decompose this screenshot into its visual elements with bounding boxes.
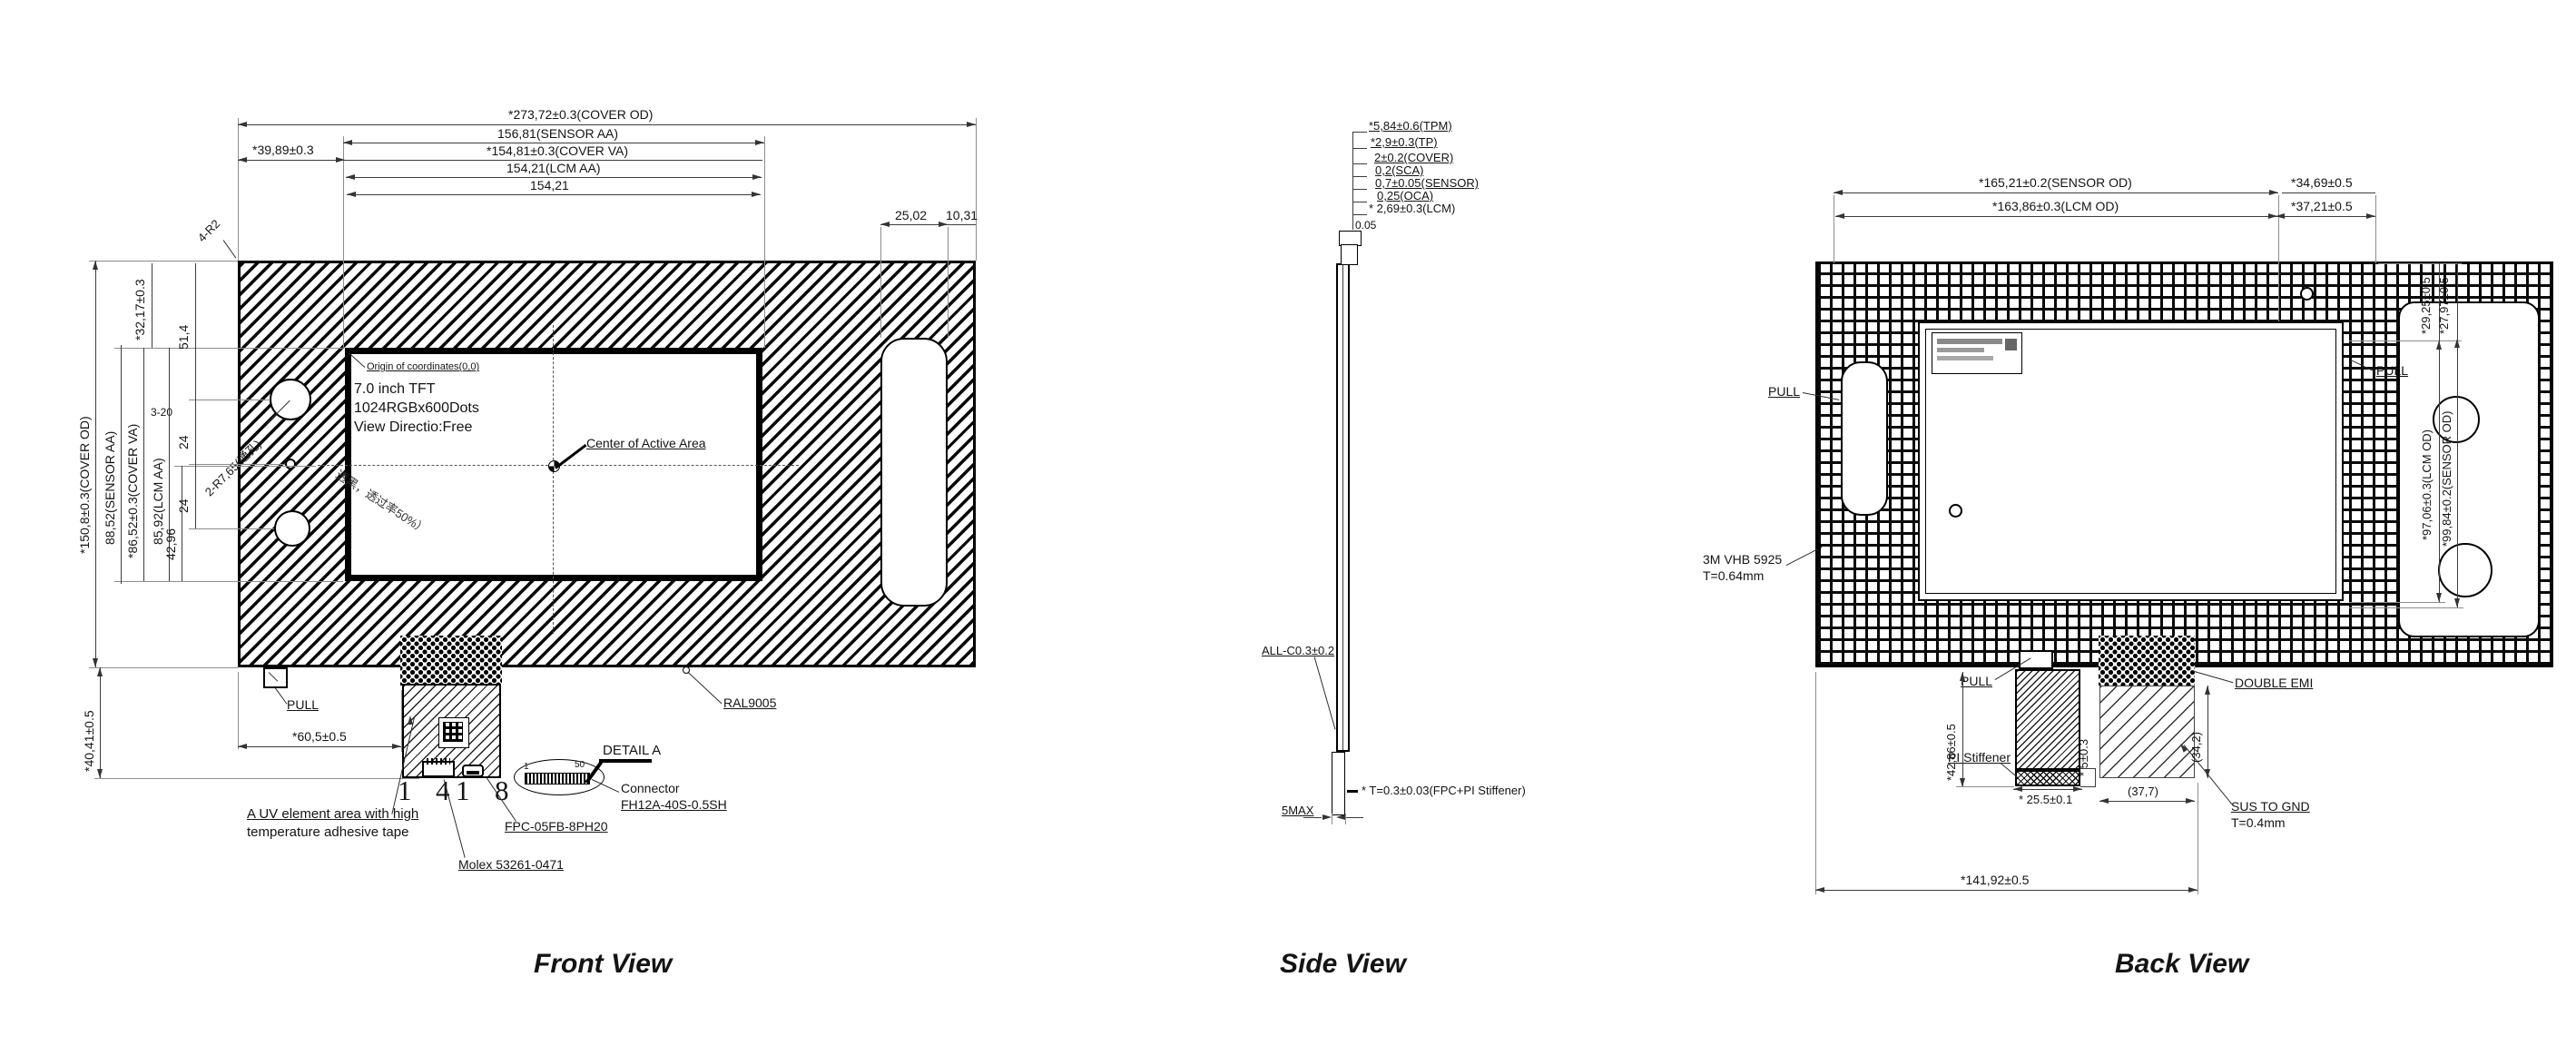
dim-bracket (2095, 768, 2096, 787)
dim-arrow (93, 658, 98, 667)
pin-number: 1 (456, 783, 470, 798)
connector-label-line1: Connector (621, 781, 680, 796)
dim-arrow (2186, 798, 2195, 804)
qr-code-box (438, 717, 469, 748)
dim-half-aa: 42,96 (163, 528, 179, 560)
back-emi-dotted-area (2099, 636, 2195, 686)
dim-line (2207, 686, 2208, 778)
dim-left-sensor-aa: 88,52(SENSOR AA) (103, 431, 118, 545)
dim-line (152, 263, 152, 348)
leader-arrow (408, 715, 413, 725)
thickness-tick (1347, 790, 1358, 793)
back-pull-tab (2019, 650, 2053, 669)
stack-leader-stub (1352, 202, 1367, 202)
dim-arrow (2099, 798, 2109, 804)
extension-line (2349, 340, 2462, 341)
sticker-text-bar (1937, 348, 1984, 352)
dim-arrow (97, 769, 103, 778)
extension-line (1345, 814, 1346, 824)
dim-left-cover-va: *86,52±0.3(COVER VA) (125, 424, 141, 558)
leader-dot (1815, 543, 1822, 549)
dim-arrow (1834, 190, 1843, 195)
extension-line (880, 227, 881, 338)
side-stack-mid (1341, 244, 1358, 265)
extension-line (189, 464, 285, 465)
stack-leader-stub (1352, 132, 1367, 133)
dim-line (100, 667, 101, 778)
dim-bracket (2080, 786, 2095, 787)
engineering-drawing-sheet: { "drawing": { "front": { "title": "Fron… (0, 0, 2576, 1046)
dim-arrow (755, 140, 764, 145)
fpc-thickness-note: * T=0.3±0.03(FPC+PI Stiffener) (1362, 783, 1526, 798)
dim-total-width: *141,92±0.5 (1961, 873, 2029, 888)
back-left-slot (1841, 361, 1888, 516)
extension-line (89, 261, 238, 261)
dim-line (182, 466, 182, 581)
dim-lcm-od: *163,86±0.3(LCM OD) (1992, 199, 2119, 214)
dim-arrow (1815, 887, 1824, 893)
extension-line (238, 118, 239, 261)
dim-line (238, 124, 976, 125)
extension-line (948, 227, 949, 338)
dim-arrow (343, 140, 352, 145)
dim-arrow (2454, 598, 2460, 607)
extension-line (764, 136, 765, 348)
dim-left-cover-od: *150,8±0.3(COVER OD) (77, 416, 93, 554)
dim-right-b: *27,97±0.5 (2436, 277, 2452, 334)
spec-size: 7.0 inch TFT (354, 381, 436, 397)
dim-line (1834, 192, 2278, 193)
dim-cover-va: *154,81±0.3(COVER VA) (487, 143, 628, 159)
vhb-tape-label-line2: T=0.64mm (1703, 568, 1764, 584)
dim-wing-b: *37,21±0.5 (2291, 199, 2353, 214)
chamfer-note: ALL-C0.3±0.2 (1262, 643, 1334, 658)
dim-lcm-aa: 154,21(LCM AA) (506, 161, 601, 176)
leader-line (222, 240, 236, 258)
fpc-part-number: FPC-05FB-8PH20 (505, 819, 608, 834)
extension-line (1815, 672, 1816, 894)
front-emi-dotted-area (400, 636, 502, 686)
stack-leader-stub (1352, 189, 1367, 190)
dim-aa: 154,21 (530, 178, 569, 193)
dim-hole-top: 51,4 (176, 325, 192, 350)
molex-part-number: Molex 53261-0471 (458, 857, 564, 873)
dim-sensor-od: *165,21±0.2(SENSOR OD) (1979, 175, 2132, 191)
extension-line (89, 667, 238, 668)
dim-arrow (336, 157, 345, 163)
dim-line (2282, 192, 2375, 193)
leader-line (274, 687, 287, 705)
qr-pattern (443, 722, 463, 742)
stack-leader-stub (1352, 176, 1367, 177)
extension-line (2349, 607, 2463, 608)
dim-line (2457, 339, 2458, 607)
dim-line (1835, 216, 2277, 217)
dim-cover-od: *273,72±0.3(COVER OD) (508, 107, 653, 123)
dim-arrow (2276, 213, 2285, 219)
dim-slot-edge: 10,31 (946, 208, 978, 223)
extension-line (189, 400, 270, 400)
dim-pi-thickness: * 5±0.3 (2076, 739, 2091, 776)
dim-line (1345, 817, 1363, 818)
dim-arrow (1960, 672, 1965, 681)
dim-arrow (238, 157, 247, 163)
stack-leader-stub (1352, 148, 1367, 149)
dim-line (880, 224, 976, 225)
extension-line (2375, 195, 2376, 263)
stack-label-lcm: * 2,69±0.3(LCM) (1369, 201, 1455, 216)
dim-line (347, 194, 761, 195)
dim-arrow (880, 222, 890, 227)
sus-gnd-label-line1: SUS TO GND (2231, 799, 2310, 814)
serial-label-sticker (1932, 332, 2022, 374)
stack-label-tp: *2,9±0.3(TP) (1371, 134, 1438, 150)
dim-line (2099, 801, 2195, 802)
connector-strip (525, 773, 590, 784)
dim-sus-height: (34,2) (2188, 732, 2204, 763)
spec-view-direction: View Directio:Free (354, 419, 472, 435)
extension-line (189, 528, 274, 529)
dim-left-offset: *39,89±0.3 (252, 143, 314, 158)
center-of-active-area-label: Center of Active Area (586, 436, 706, 451)
mounting-hole (274, 510, 310, 547)
vertical-centerline (553, 325, 554, 634)
fpc-length-note: 5MAX (1282, 803, 1313, 818)
dim-fpc-height: *42,86±0.5 (1943, 724, 1959, 781)
pin-number: 1 (398, 783, 412, 798)
dim-arrow (93, 261, 98, 270)
dim-arrow (2013, 786, 2022, 792)
extension-line (238, 672, 239, 749)
extension-line (2349, 602, 2445, 603)
extension-line (976, 118, 977, 261)
dim-tail-height: *40,41±0.5 (82, 710, 97, 772)
dim-arrow (752, 192, 761, 197)
dim-arrow (2269, 190, 2278, 195)
dim-hole-pitch: 24 (176, 435, 192, 449)
dim-line (143, 348, 144, 581)
back-hole-small (1949, 504, 1962, 518)
dim-slot-width: 25,02 (895, 208, 927, 223)
back-pull-right-label: PULL (2376, 363, 2408, 379)
sticker-text-bar (1937, 339, 2002, 344)
dim-arrow (2436, 593, 2442, 602)
sticker-qr (2005, 339, 2017, 350)
paint-color-label: RAL9005 (723, 696, 776, 711)
leader-line (2191, 670, 2233, 683)
vhb-tape-label-line1: 3M VHB 5925 (1703, 552, 1782, 567)
side-profile-layer-line (1342, 265, 1343, 750)
side-fpc-tail (1332, 752, 1345, 815)
back-sus-plate (2099, 686, 2195, 778)
dim-arrow (2454, 339, 2460, 348)
extension-line (1834, 195, 1834, 263)
dim-arrow (392, 744, 401, 749)
connector-label-line2: FH12A-40S-0.5SH (621, 797, 727, 813)
dim-line (1815, 890, 2197, 891)
dim-line (2457, 263, 2458, 339)
stack-label-tpm: *5,84±0.6(TPM) (1369, 118, 1452, 133)
sticker-text-bar (1937, 356, 1993, 360)
sus-gnd-label-line2: T=0.4mm (2231, 815, 2286, 831)
dim-arrow (1336, 814, 1345, 820)
dim-line (1962, 672, 1963, 787)
dim-arrow (238, 122, 247, 127)
dim-arrow (2366, 213, 2375, 219)
extension-line (114, 581, 343, 582)
back-fpc (2015, 669, 2080, 770)
dim-sus-width: (37,7) (2128, 784, 2158, 799)
dim-line (238, 746, 401, 747)
dim-arrow (2436, 340, 2442, 350)
spec-resolution: 1024RGBx600Dots (354, 400, 479, 416)
back-view-title: Back View (2115, 949, 2248, 980)
back-pull-bottom-label: PULL (1961, 674, 1992, 689)
dim-right-a: *29,25±0.5 (2418, 277, 2433, 334)
dim-fpc-offset: *60,5±0.5 (292, 729, 347, 745)
dim-top-offset: *32,17±0.3 (133, 279, 148, 340)
back-pi-stiffener (2015, 770, 2080, 786)
front-view-title: Front View (534, 949, 672, 980)
extension-line (343, 136, 344, 348)
dim-fpc-width: * 25.5±0.1 (2019, 792, 2072, 807)
dim-arrow (2205, 686, 2210, 695)
extension-line (114, 348, 343, 349)
stack-leader-stub (1352, 214, 1367, 215)
pin-first-label: 1 (524, 759, 529, 775)
back-hole-large (2438, 543, 2492, 597)
side-view-title: Side View (1280, 949, 1406, 980)
detail-a-leader (599, 759, 652, 763)
dim-hole-pitch: 24 (176, 498, 192, 513)
mounting-hole-small (285, 459, 296, 469)
dim-sensor-od-v: *99,84±0.2(SENSOR OD) (2439, 411, 2454, 547)
detail-a-label: DETAIL A (603, 743, 661, 758)
dim-arrow (347, 192, 356, 197)
dim-line (95, 261, 96, 667)
dim-line (2013, 789, 2082, 790)
leader-line (1786, 548, 1819, 566)
pin-last-label: 50 (575, 757, 585, 773)
dim-arrow (752, 174, 762, 180)
dim-line (238, 160, 345, 161)
uv-note-line2: temperature adhesive tape (247, 824, 408, 840)
connector-pins (427, 758, 450, 765)
dim-line (1303, 817, 1322, 818)
extension-line (2378, 263, 2462, 264)
leader-line (687, 671, 723, 704)
dim-arrow (1835, 213, 1844, 219)
back-hole-small (2300, 287, 2314, 301)
dim-wing-a: *34,69±0.5 (2291, 175, 2353, 191)
dim-sensor-aa: 156,81(SENSOR AA) (497, 126, 618, 142)
pin-number: 8 (495, 783, 509, 798)
dim-arrow (2188, 887, 2197, 893)
leader-line (1313, 656, 1335, 729)
dim-arrow (1322, 814, 1332, 820)
dim-arrow (97, 667, 103, 676)
extension-line (1332, 814, 1332, 824)
dim-lcm-od-v: *97,06±0.3(LCM OD) (2419, 429, 2434, 540)
front-pull-label: PULL (287, 697, 319, 713)
dim-arrow (2205, 769, 2210, 778)
origin-label: Origin of coordinates(0,0) (367, 360, 479, 375)
extension-line (2197, 783, 2198, 894)
back-pull-left-label: PULL (1768, 384, 1800, 400)
dim-arrow (346, 174, 355, 180)
dim-line (195, 263, 196, 528)
dim-arrow (238, 744, 247, 749)
corner-radius-note: 4-R2 (194, 216, 223, 245)
stack-leader-stub (1352, 163, 1367, 164)
dim-line (2276, 216, 2375, 217)
dim-line (121, 345, 122, 584)
front-right-slot (880, 338, 948, 607)
extension-line (94, 778, 419, 779)
dim-arrow (967, 122, 976, 127)
stack-gap-label: 0.05 (1355, 218, 1376, 233)
extension-line (1956, 786, 2014, 787)
leader-dot (683, 666, 690, 674)
double-emi-label: DOUBLE EMI (2235, 676, 2313, 691)
